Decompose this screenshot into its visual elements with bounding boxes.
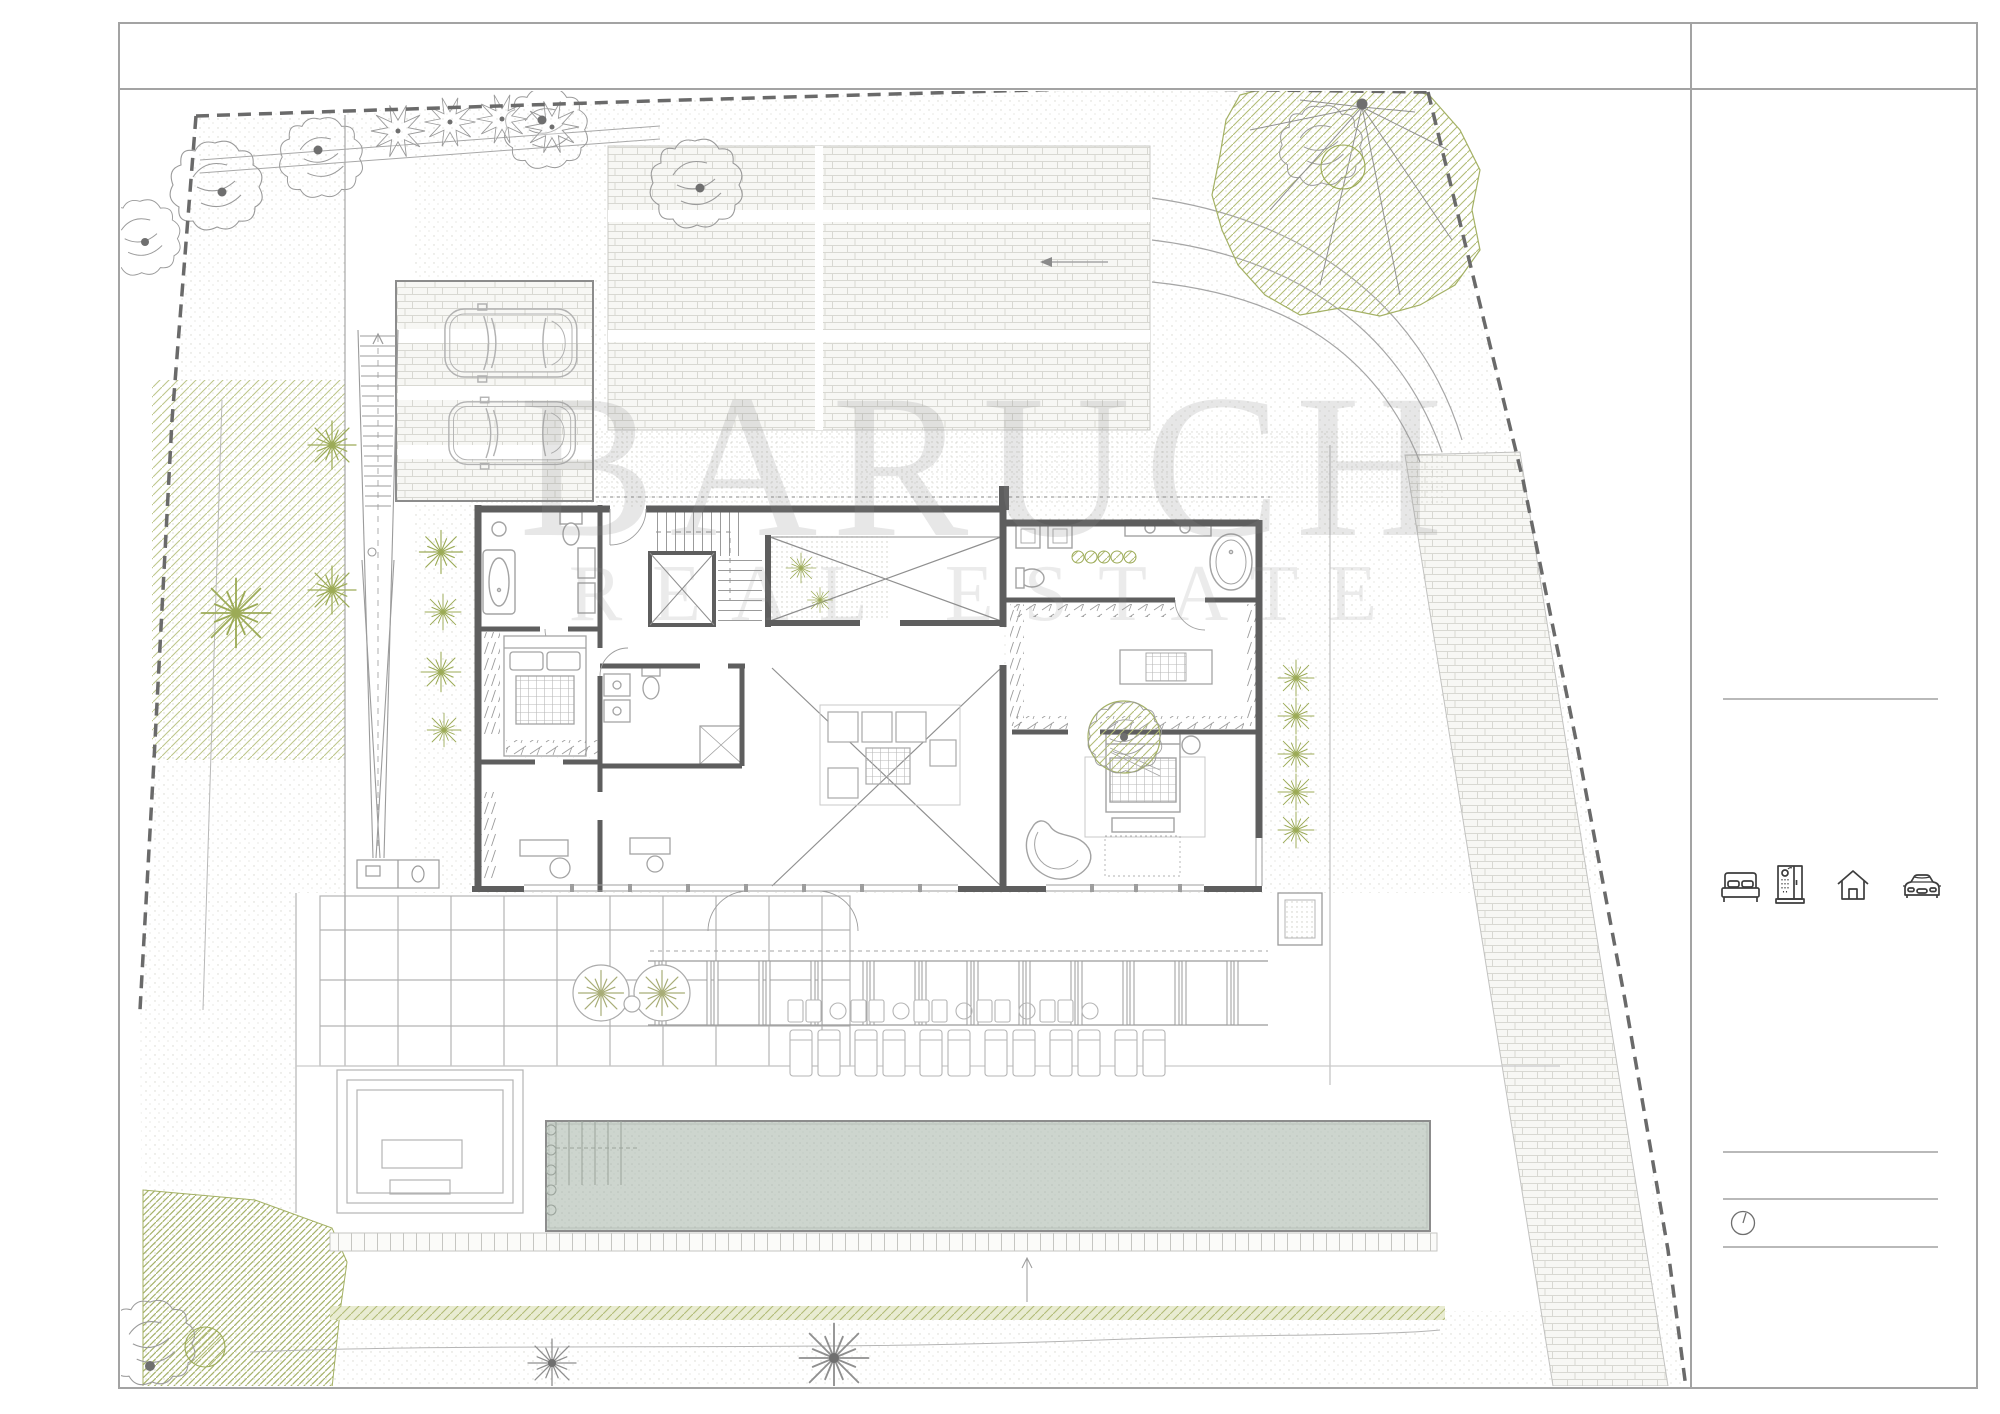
plan-sheet: BARUCH REAL ESTATE (0, 0, 2000, 1414)
double-bed-icon (1722, 873, 1759, 902)
pool-deck-planks (330, 1233, 1437, 1251)
watermark: BARUCH REAL ESTATE (519, 353, 1457, 638)
site-plan: BARUCH REAL ESTATE (102, 80, 1686, 1393)
watermark-line2: REAL ESTATE (569, 550, 1407, 638)
car-icon (1903, 875, 1941, 898)
clock-icon (1732, 1212, 1755, 1235)
house-icon (1838, 871, 1868, 899)
shower-cabin-icon (1776, 866, 1804, 903)
title-block (1722, 699, 1941, 1247)
terrace-wc (357, 860, 439, 888)
big-tree (1212, 80, 1480, 316)
watermark-line1: BARUCH (519, 353, 1457, 580)
spa (1278, 893, 1322, 945)
